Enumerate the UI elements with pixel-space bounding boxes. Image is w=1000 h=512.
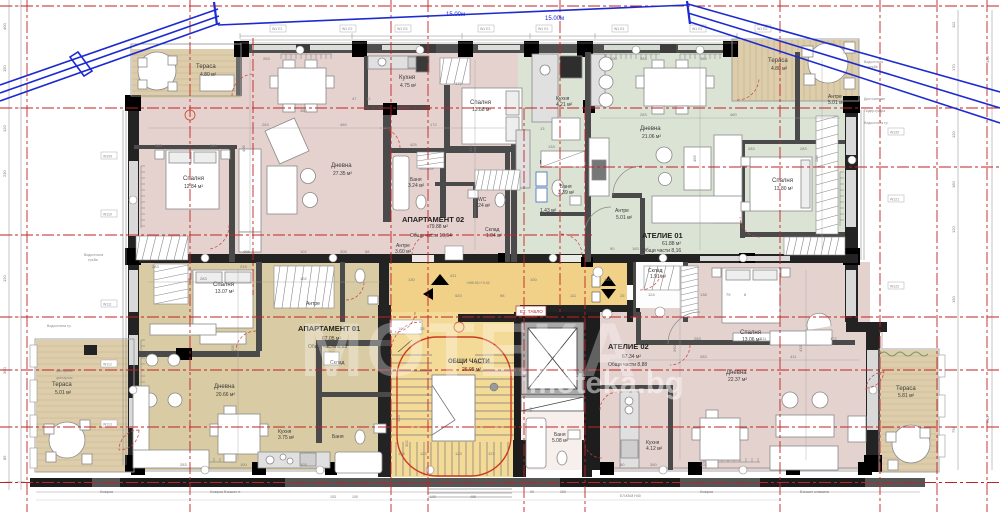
svg-text:283: 283 xyxy=(152,264,159,269)
svg-text:5.81 м²: 5.81 м² xyxy=(898,393,915,399)
svg-text:3.75 м²: 3.75 м² xyxy=(278,435,295,441)
svg-text:imoteka.bg: imoteka.bg xyxy=(520,365,684,400)
svg-text:61.88 м²: 61.88 м² xyxy=(662,241,681,247)
svg-text:150: 150 xyxy=(2,65,7,72)
svg-text:260: 260 xyxy=(560,490,566,494)
svg-text:130: 130 xyxy=(408,277,415,282)
svg-text:305: 305 xyxy=(340,249,347,254)
svg-text:320: 320 xyxy=(985,56,990,63)
svg-text:4.12 м²: 4.12 м² xyxy=(646,446,663,452)
svg-text:411: 411 xyxy=(790,354,797,359)
svg-text:4.80 м²: 4.80 м² xyxy=(771,66,788,72)
svg-text:249: 249 xyxy=(210,143,217,148)
svg-text:102: 102 xyxy=(300,276,307,281)
svg-text:W1 Е3: W1 Е3 xyxy=(397,27,408,31)
svg-text:W109: W109 xyxy=(103,155,112,159)
svg-text:Баня: Баня xyxy=(332,434,344,440)
svg-text:283: 283 xyxy=(155,143,162,148)
svg-text:5.01 м²: 5.01 м² xyxy=(55,390,72,396)
svg-text:88: 88 xyxy=(365,249,370,254)
svg-text:Водосточна тр.: Водосточна тр. xyxy=(47,324,72,328)
svg-text:Кухня: Кухня xyxy=(399,75,415,81)
svg-text:120: 120 xyxy=(2,275,7,282)
svg-text:183: 183 xyxy=(396,415,401,422)
svg-text:120: 120 xyxy=(951,226,956,233)
svg-text:283: 283 xyxy=(200,276,207,281)
svg-text:100: 100 xyxy=(430,495,436,499)
svg-text:4.80 м²: 4.80 м² xyxy=(200,72,217,78)
svg-text:Дневна: Дневна xyxy=(331,163,352,169)
svg-text:123: 123 xyxy=(420,451,427,456)
svg-text:27.35 м²: 27.35 м² xyxy=(333,171,352,177)
svg-text:Спалня: Спалня xyxy=(183,176,204,182)
svg-text:411: 411 xyxy=(760,336,767,341)
svg-text:Общи части 8,16: Общи части 8,16 xyxy=(642,248,681,254)
svg-text:W1 Е2: W1 Е2 xyxy=(757,27,768,31)
svg-text:W1 Е2: W1 Е2 xyxy=(692,27,703,31)
svg-text:405: 405 xyxy=(243,249,250,254)
svg-text:4.75 м²: 4.75 м² xyxy=(400,83,417,89)
svg-text:Външен климатик: Външен климатик xyxy=(800,490,830,494)
svg-text:W111: W111 xyxy=(103,303,112,307)
svg-text:111: 111 xyxy=(570,293,577,298)
svg-text:Общи части 10,54: Общи части 10,54 xyxy=(410,233,452,239)
svg-text:102: 102 xyxy=(300,249,307,254)
svg-text:Антре: Антре xyxy=(306,301,320,307)
svg-text:АПАРТАМЕНТ 02: АПАРТАМЕНТ 02 xyxy=(402,215,464,224)
svg-text:Дневна: Дневна xyxy=(214,384,235,390)
svg-text:Дневна: Дневна xyxy=(640,126,661,132)
svg-text:W112: W112 xyxy=(103,363,112,367)
svg-text:405: 405 xyxy=(230,345,235,352)
svg-text:100: 100 xyxy=(604,277,611,282)
svg-text:АТЕЛИЕ 01: АТЕЛИЕ 01 xyxy=(642,231,683,240)
svg-text:260: 260 xyxy=(672,345,677,352)
svg-text:150: 150 xyxy=(951,296,956,303)
svg-text:W120: W120 xyxy=(890,131,899,135)
svg-text:411: 411 xyxy=(450,273,457,278)
svg-text:260: 260 xyxy=(650,462,657,467)
svg-text:283: 283 xyxy=(180,462,187,467)
svg-text:12: 12 xyxy=(366,96,371,101)
svg-text:1.04 м²: 1.04 м² xyxy=(486,233,503,239)
svg-text:21.06 м²: 21.06 м² xyxy=(642,134,661,140)
svg-text:W1 Е1: W1 Е1 xyxy=(272,27,283,31)
svg-text:460: 460 xyxy=(700,56,707,61)
svg-text:100: 100 xyxy=(610,56,617,61)
svg-text:120: 120 xyxy=(2,125,7,132)
svg-text:+495.52=+3.42: +495.52=+3.42 xyxy=(466,281,490,285)
svg-text:Спалня: Спалня xyxy=(470,100,491,106)
svg-text:22.37 м²: 22.37 м² xyxy=(728,377,747,383)
svg-text:W122: W122 xyxy=(890,285,899,289)
svg-text:183: 183 xyxy=(632,246,639,251)
svg-text:123: 123 xyxy=(488,451,495,456)
svg-text:425: 425 xyxy=(410,142,417,147)
svg-text:Спалня: Спалня xyxy=(213,282,234,288)
svg-text:124: 124 xyxy=(398,451,405,456)
svg-text:138: 138 xyxy=(700,292,707,297)
svg-text:5.01 м²: 5.01 м² xyxy=(616,215,633,221)
svg-text:W121: W121 xyxy=(890,198,899,202)
svg-text:Антре: Антре xyxy=(615,208,629,214)
svg-text:Козирка: Козирка xyxy=(700,490,713,494)
svg-text:W113: W113 xyxy=(103,423,112,427)
svg-text:283: 283 xyxy=(748,146,755,151)
svg-text:5.08 м²: 5.08 м² xyxy=(552,438,569,444)
svg-text:112: 112 xyxy=(951,21,956,28)
svg-text:230: 230 xyxy=(2,170,7,177)
svg-text:283: 283 xyxy=(800,146,807,151)
svg-text:47: 47 xyxy=(352,96,357,101)
svg-text:Спалня: Спалня xyxy=(772,178,793,184)
svg-text:98: 98 xyxy=(500,293,505,298)
svg-text:124: 124 xyxy=(648,292,655,297)
svg-text:283: 283 xyxy=(814,155,819,162)
svg-text:172: 172 xyxy=(430,122,437,127)
svg-text:Тераса: Тераса xyxy=(196,64,216,70)
svg-text:400: 400 xyxy=(2,23,7,30)
svg-text:Тераса: Тераса xyxy=(896,386,916,392)
svg-text:W1 Е1: W1 Е1 xyxy=(614,27,625,31)
svg-text:13: 13 xyxy=(540,126,545,131)
svg-text:W110: W110 xyxy=(103,213,112,217)
svg-text:тръба: тръба xyxy=(88,258,98,262)
svg-text:263: 263 xyxy=(262,122,269,127)
svg-text:460: 460 xyxy=(340,122,347,127)
svg-text:60: 60 xyxy=(620,462,625,467)
svg-text:283: 283 xyxy=(640,112,647,117)
svg-text:460: 460 xyxy=(730,112,737,117)
svg-text:123: 123 xyxy=(455,451,462,456)
svg-text:Дист.кантове: Дист.кантове xyxy=(864,97,885,101)
svg-text:283: 283 xyxy=(700,354,707,359)
svg-text:495: 495 xyxy=(470,495,476,499)
svg-text:103: 103 xyxy=(700,462,707,467)
svg-text:50: 50 xyxy=(528,407,533,412)
svg-text:103: 103 xyxy=(330,495,336,499)
svg-text:Тераса: Тераса xyxy=(52,382,72,388)
svg-text:100: 100 xyxy=(240,462,247,467)
svg-text:5.01 м²: 5.01 м² xyxy=(828,100,845,106)
svg-text:172: 172 xyxy=(468,145,473,152)
svg-text:15.00м: 15.00м xyxy=(446,12,465,18)
svg-text:Спалня: Спалня xyxy=(740,330,761,336)
svg-text:4.21 м²: 4.21 м² xyxy=(556,102,573,108)
svg-text:ЕЛ.КЪМ Н40: ЕЛ.КЪМ Н40 xyxy=(620,494,641,498)
svg-text:263: 263 xyxy=(263,56,270,61)
svg-text:Водосточна: Водосточна xyxy=(84,253,103,257)
svg-text:172: 172 xyxy=(830,336,837,341)
svg-text:25: 25 xyxy=(620,293,625,298)
svg-text:13.80 м²: 13.80 м² xyxy=(774,186,793,192)
svg-text:Дневна: Дневна xyxy=(726,370,747,376)
svg-text:W1 Е1: W1 Е1 xyxy=(538,27,549,31)
svg-text:172: 172 xyxy=(455,81,462,86)
svg-text:12.84 м²: 12.84 м² xyxy=(184,184,203,190)
svg-text:283: 283 xyxy=(694,336,701,341)
svg-text:W1 Е2: W1 Е2 xyxy=(342,27,353,31)
svg-text:15.00м: 15.00м xyxy=(545,16,564,22)
svg-text:120: 120 xyxy=(951,131,956,138)
svg-text:3.39 м²: 3.39 м² xyxy=(558,190,575,196)
svg-text:219: 219 xyxy=(240,264,247,269)
svg-text:100: 100 xyxy=(352,495,358,499)
svg-text:283: 283 xyxy=(640,56,647,61)
svg-text:13.07 м²: 13.07 м² xyxy=(215,289,234,295)
svg-text:103: 103 xyxy=(300,462,307,467)
svg-text:520: 520 xyxy=(455,293,462,298)
svg-text:3.60 м²: 3.60 м² xyxy=(395,249,412,255)
svg-text:460: 460 xyxy=(300,108,307,113)
svg-text:20.66 м²: 20.66 м² xyxy=(216,392,235,398)
svg-text:Подпр.графа: Подпр.графа xyxy=(864,109,885,113)
svg-text:W1 Е1: W1 Е1 xyxy=(480,27,491,31)
svg-text:170: 170 xyxy=(951,64,956,71)
svg-text:79: 79 xyxy=(726,292,731,297)
svg-text:Тераса: Тераса xyxy=(768,58,788,64)
svg-text:455: 455 xyxy=(692,155,697,162)
svg-text:940: 940 xyxy=(985,416,990,423)
svg-text:133: 133 xyxy=(548,144,555,149)
svg-text:Водосточна тр.: Водосточна тр. xyxy=(864,121,889,125)
svg-text:1.91 м²: 1.91 м² xyxy=(650,274,667,280)
svg-text:3.24 м²: 3.24 м² xyxy=(408,183,425,189)
svg-text:160: 160 xyxy=(951,181,956,188)
svg-text:405: 405 xyxy=(241,145,246,152)
svg-text:79.88 м²: 79.88 м² xyxy=(429,224,448,230)
svg-text:90: 90 xyxy=(610,246,615,251)
svg-text:100: 100 xyxy=(530,277,537,282)
svg-text:415: 415 xyxy=(798,345,803,352)
svg-text:Козирка Външен п.: Козирка Външен п. xyxy=(210,490,241,494)
svg-text:302: 302 xyxy=(404,440,409,447)
svg-text:Козирка: Козирка xyxy=(100,490,113,494)
svg-text:13.06 м²: 13.06 м² xyxy=(742,337,761,343)
svg-text:85: 85 xyxy=(2,455,7,460)
svg-text:1.43 м²: 1.43 м² xyxy=(540,208,557,214)
svg-text:1.24 м²: 1.24 м² xyxy=(474,203,491,209)
svg-text:90: 90 xyxy=(530,490,534,494)
svg-text:цветарник: цветарник xyxy=(56,376,73,380)
